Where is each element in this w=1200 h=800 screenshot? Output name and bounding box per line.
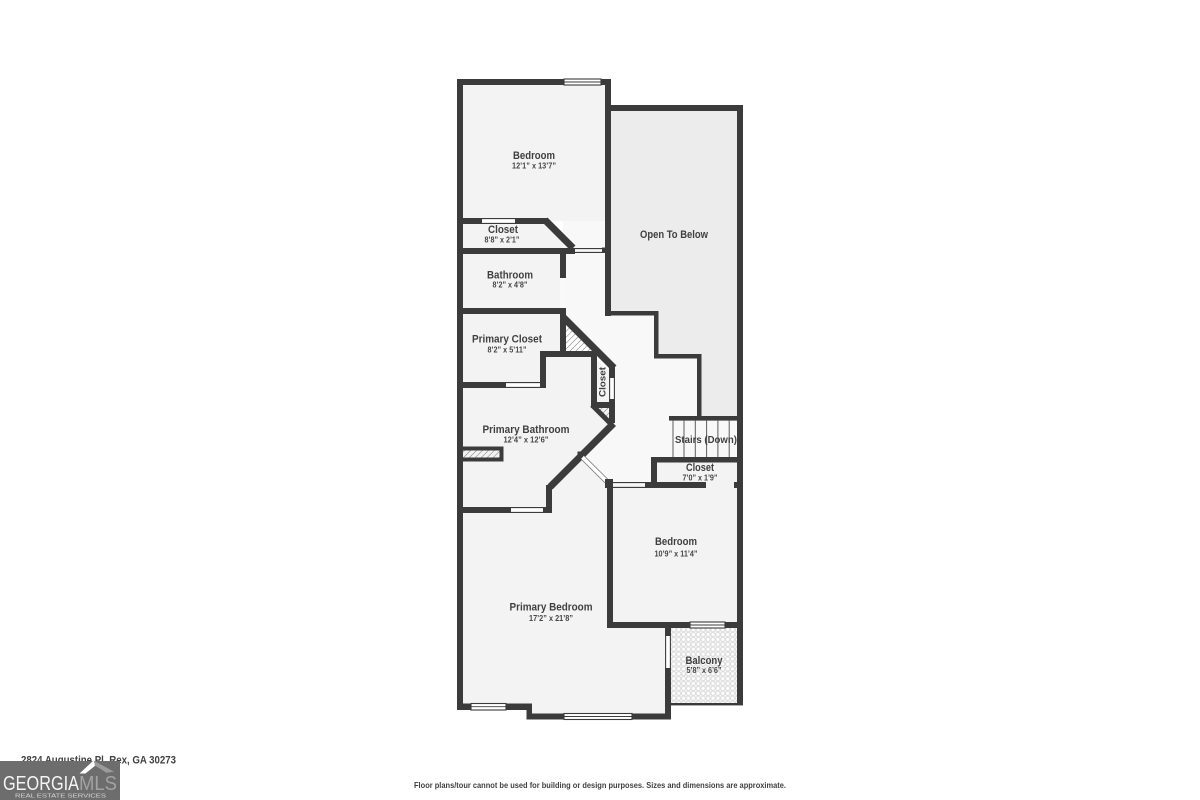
svg-text:MLS: MLS — [79, 772, 117, 795]
svg-text:12’1” x 13’7”: 12’1” x 13’7” — [512, 161, 556, 171]
svg-text:Primary Bedroom: Primary Bedroom — [510, 602, 593, 614]
svg-text:Floor plans/tour cannot be use: Floor plans/tour cannot be used for buil… — [414, 780, 786, 790]
svg-text:7’0” x 1’9”: 7’0” x 1’9” — [683, 473, 718, 483]
svg-text:Bedroom: Bedroom — [655, 536, 697, 548]
svg-text:10’9” x 11’4”: 10’9” x 11’4” — [655, 549, 698, 559]
svg-text:Open To Below: Open To Below — [640, 229, 708, 241]
svg-text:Closet: Closet — [598, 366, 609, 397]
svg-text:17’2” x 21’8”: 17’2” x 21’8” — [529, 613, 573, 623]
svg-text:Stairs (Down): Stairs (Down) — [675, 434, 737, 446]
svg-text:8’2” x 4’8”: 8’2” x 4’8” — [493, 280, 528, 290]
svg-text:8’8” x 2’1”: 8’8” x 2’1” — [485, 235, 520, 245]
svg-text:5’8” x 6’6”: 5’8” x 6’6” — [687, 665, 722, 675]
svg-text:REAL ESTATE SERVICES: REAL ESTATE SERVICES — [15, 793, 106, 799]
svg-text:12’4” x 12’6”: 12’4” x 12’6” — [504, 435, 549, 445]
svg-text:GEORGIA: GEORGIA — [3, 772, 79, 795]
svg-text:8’2” x 5’11”: 8’2” x 5’11” — [488, 345, 527, 355]
